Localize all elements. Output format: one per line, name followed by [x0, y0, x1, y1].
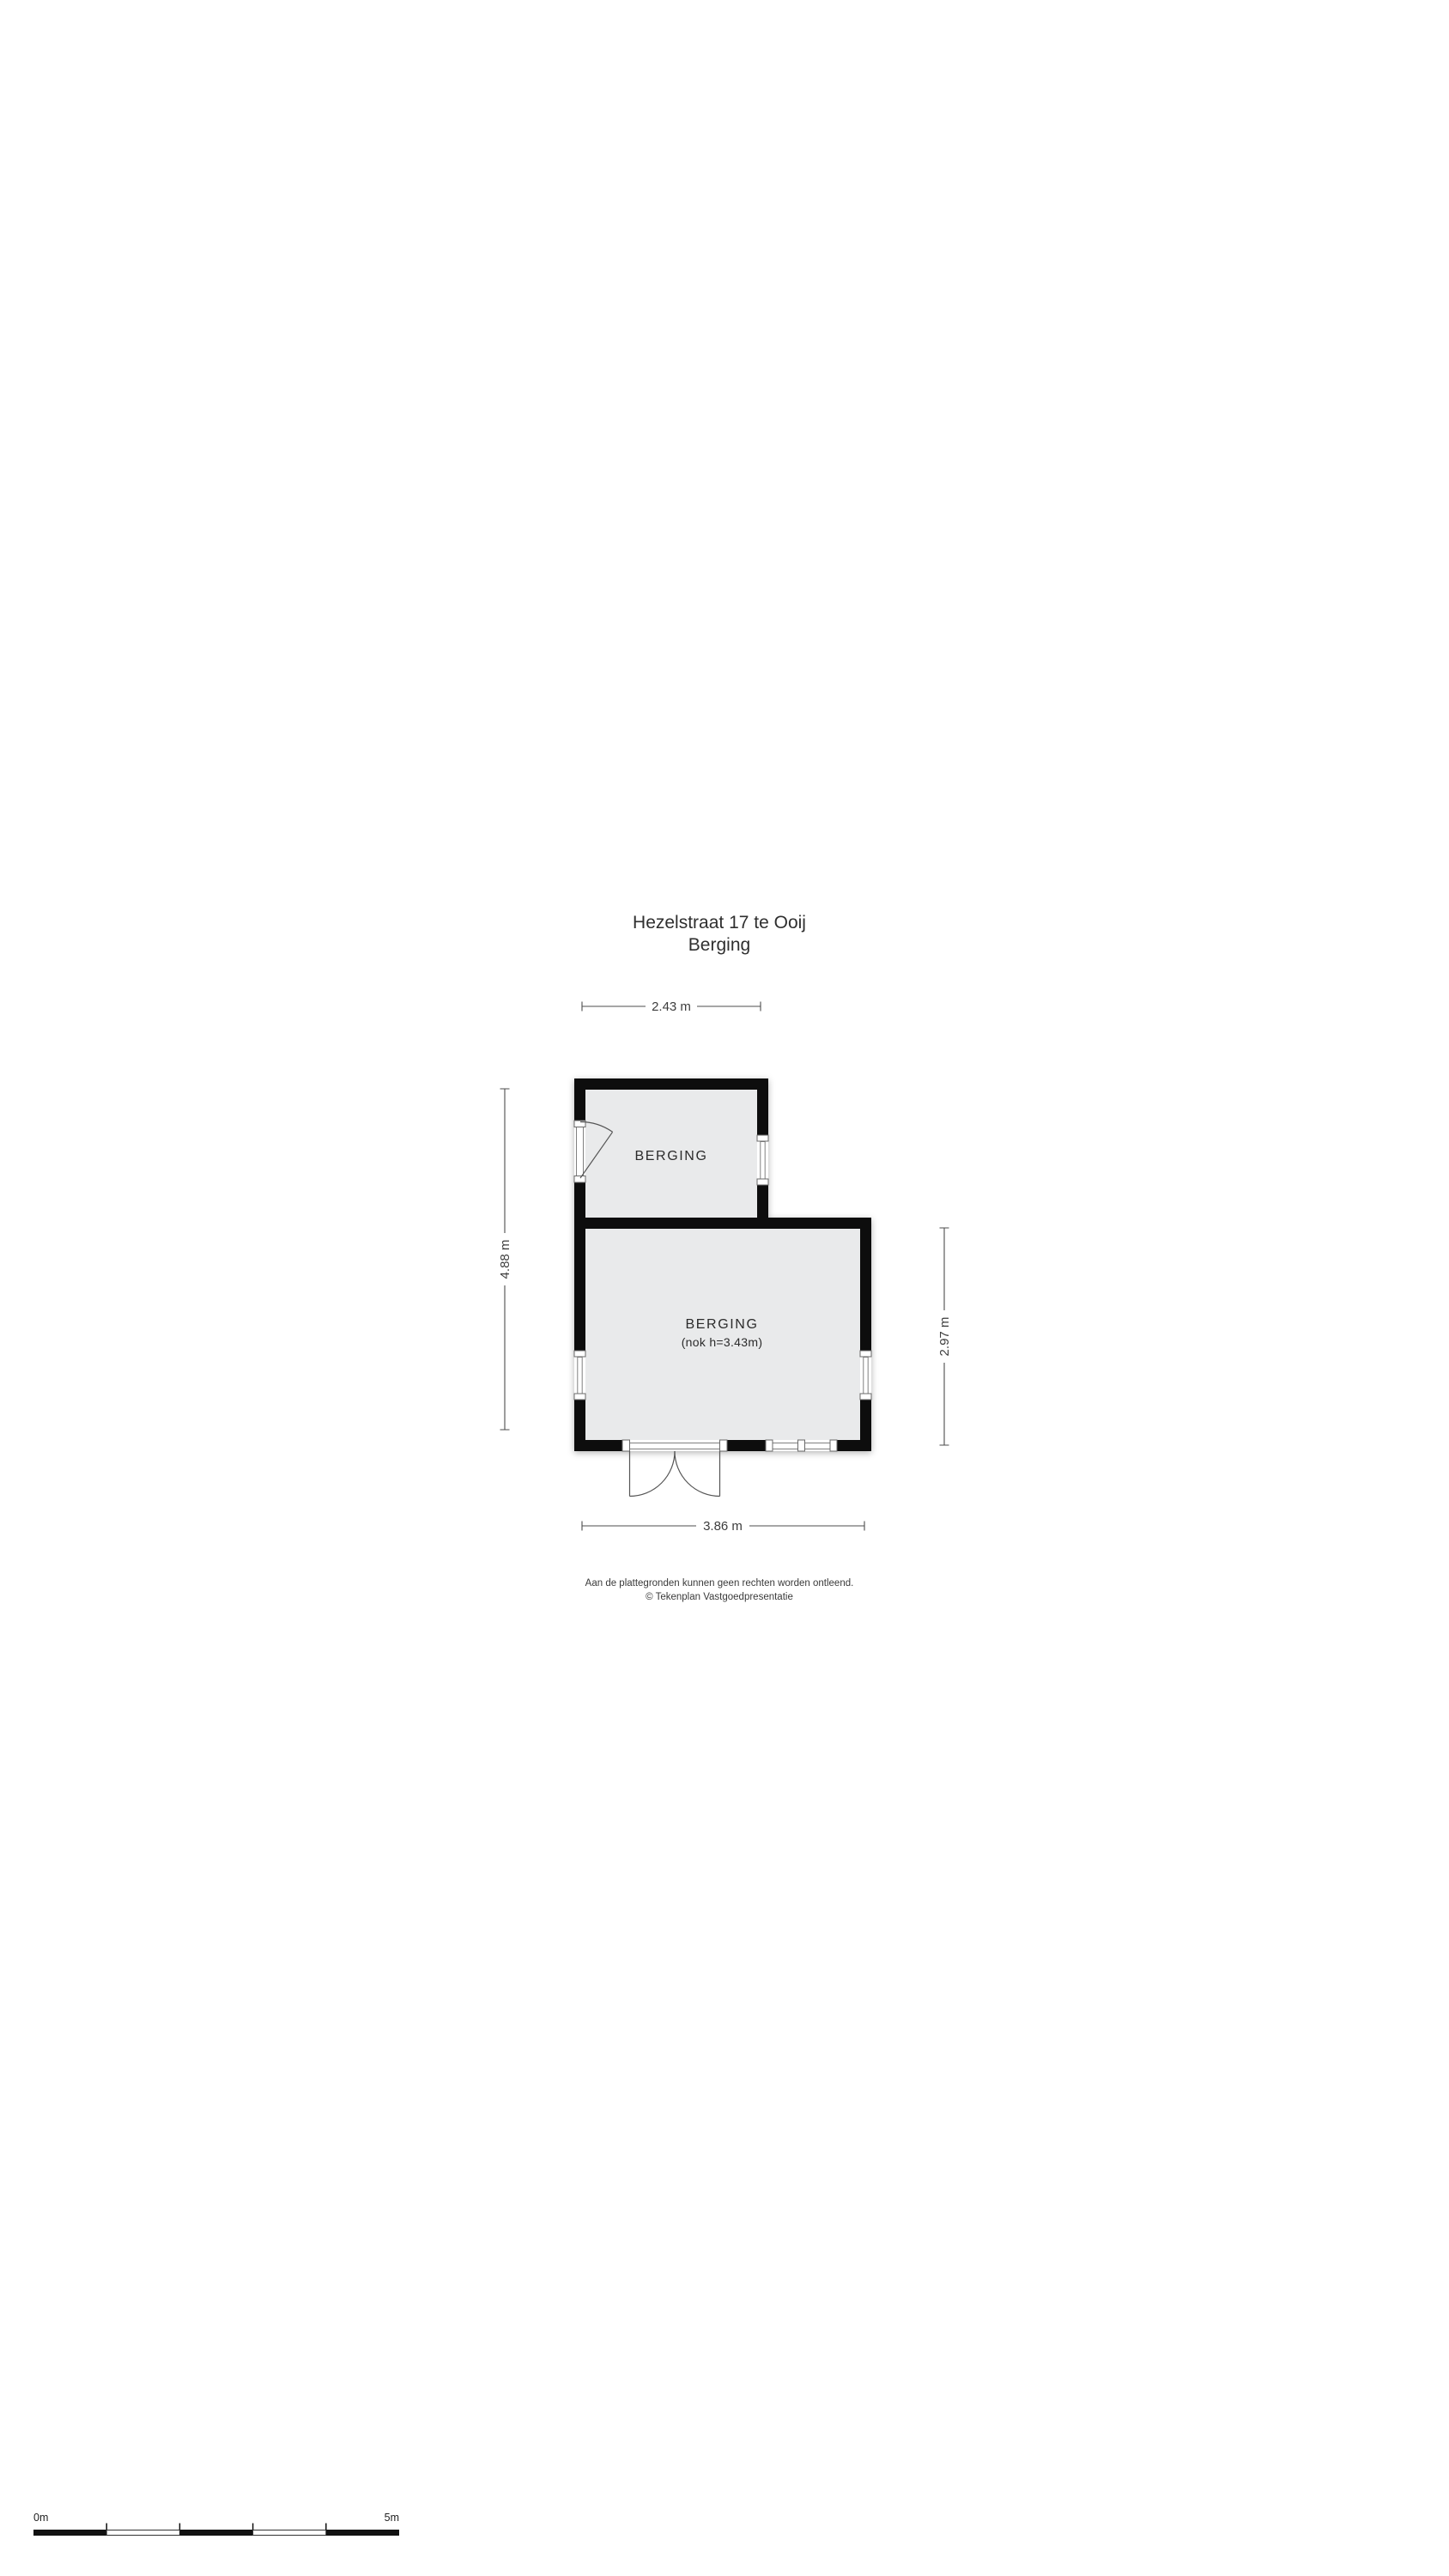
dimension-value-left: 4.88 m — [498, 1240, 512, 1279]
dimension-right: 2.97 m — [937, 1228, 952, 1445]
page: Hezelstraat 17 te Ooij Berging — [0, 0, 1449, 2576]
room-label-main: BERGING — [686, 1317, 759, 1332]
window-post — [798, 1440, 805, 1451]
window-post — [757, 1135, 768, 1141]
window-post — [860, 1351, 871, 1357]
scale-end-label: 5m — [385, 2512, 399, 2524]
room-sublabel-main: (nok h=3.43m) — [682, 1335, 763, 1349]
window-post — [766, 1440, 773, 1451]
door-post-right — [720, 1440, 728, 1451]
window-glazing — [805, 1443, 831, 1449]
page-title: Hezelstraat 17 te Ooij — [633, 913, 806, 933]
door-frame-top-room — [577, 1127, 584, 1177]
scale-segment-white — [106, 2530, 179, 2536]
room-berging-main-floor — [585, 1229, 860, 1440]
window-glazing — [773, 1443, 798, 1449]
scale-start-label: 0m — [33, 2512, 48, 2524]
scale-segment-black — [326, 2530, 399, 2536]
dimension-left: 4.88 m — [498, 1089, 512, 1430]
window-post — [860, 1394, 871, 1400]
scale-ticks — [106, 2524, 326, 2530]
window-post — [574, 1394, 585, 1400]
window-post — [574, 1351, 585, 1357]
dimension-top: 2.43 m — [582, 999, 761, 1014]
dimension-value-bottom: 3.86 m — [703, 1519, 743, 1534]
window-glazing — [761, 1142, 765, 1180]
door-swing-arc-right — [675, 1451, 720, 1497]
scale-segment-black — [179, 2530, 252, 2536]
dimension-bottom: 3.86 m — [582, 1519, 864, 1534]
door-frame-bottom — [630, 1443, 720, 1449]
scale-segment-white — [253, 2530, 326, 2536]
copyright-text: © Tekenplan Vastgoedpresentatie — [646, 1592, 793, 1602]
page-subtitle: Berging — [688, 935, 750, 955]
disclaimer-text: Aan de plattegronden kunnen geen rechten… — [585, 1578, 854, 1589]
window-glazing — [864, 1358, 868, 1394]
scale-bar: 0m 5m — [33, 2512, 399, 2536]
window-post — [757, 1179, 768, 1185]
scale-segment-black — [33, 2530, 106, 2536]
door-post-left — [622, 1440, 630, 1451]
double-door-bottom — [622, 1440, 727, 1497]
dimension-value-right: 2.97 m — [937, 1317, 952, 1357]
door-post-bottom — [574, 1176, 585, 1183]
door-swing-arc-left — [630, 1451, 676, 1497]
room-label-top: BERGING — [635, 1149, 708, 1163]
floorplan-svg: Hezelstraat 17 te Ooij Berging — [0, 0, 1449, 2576]
window-post — [830, 1440, 837, 1451]
window-glazing — [578, 1358, 582, 1394]
dimension-value-top: 2.43 m — [652, 999, 691, 1014]
